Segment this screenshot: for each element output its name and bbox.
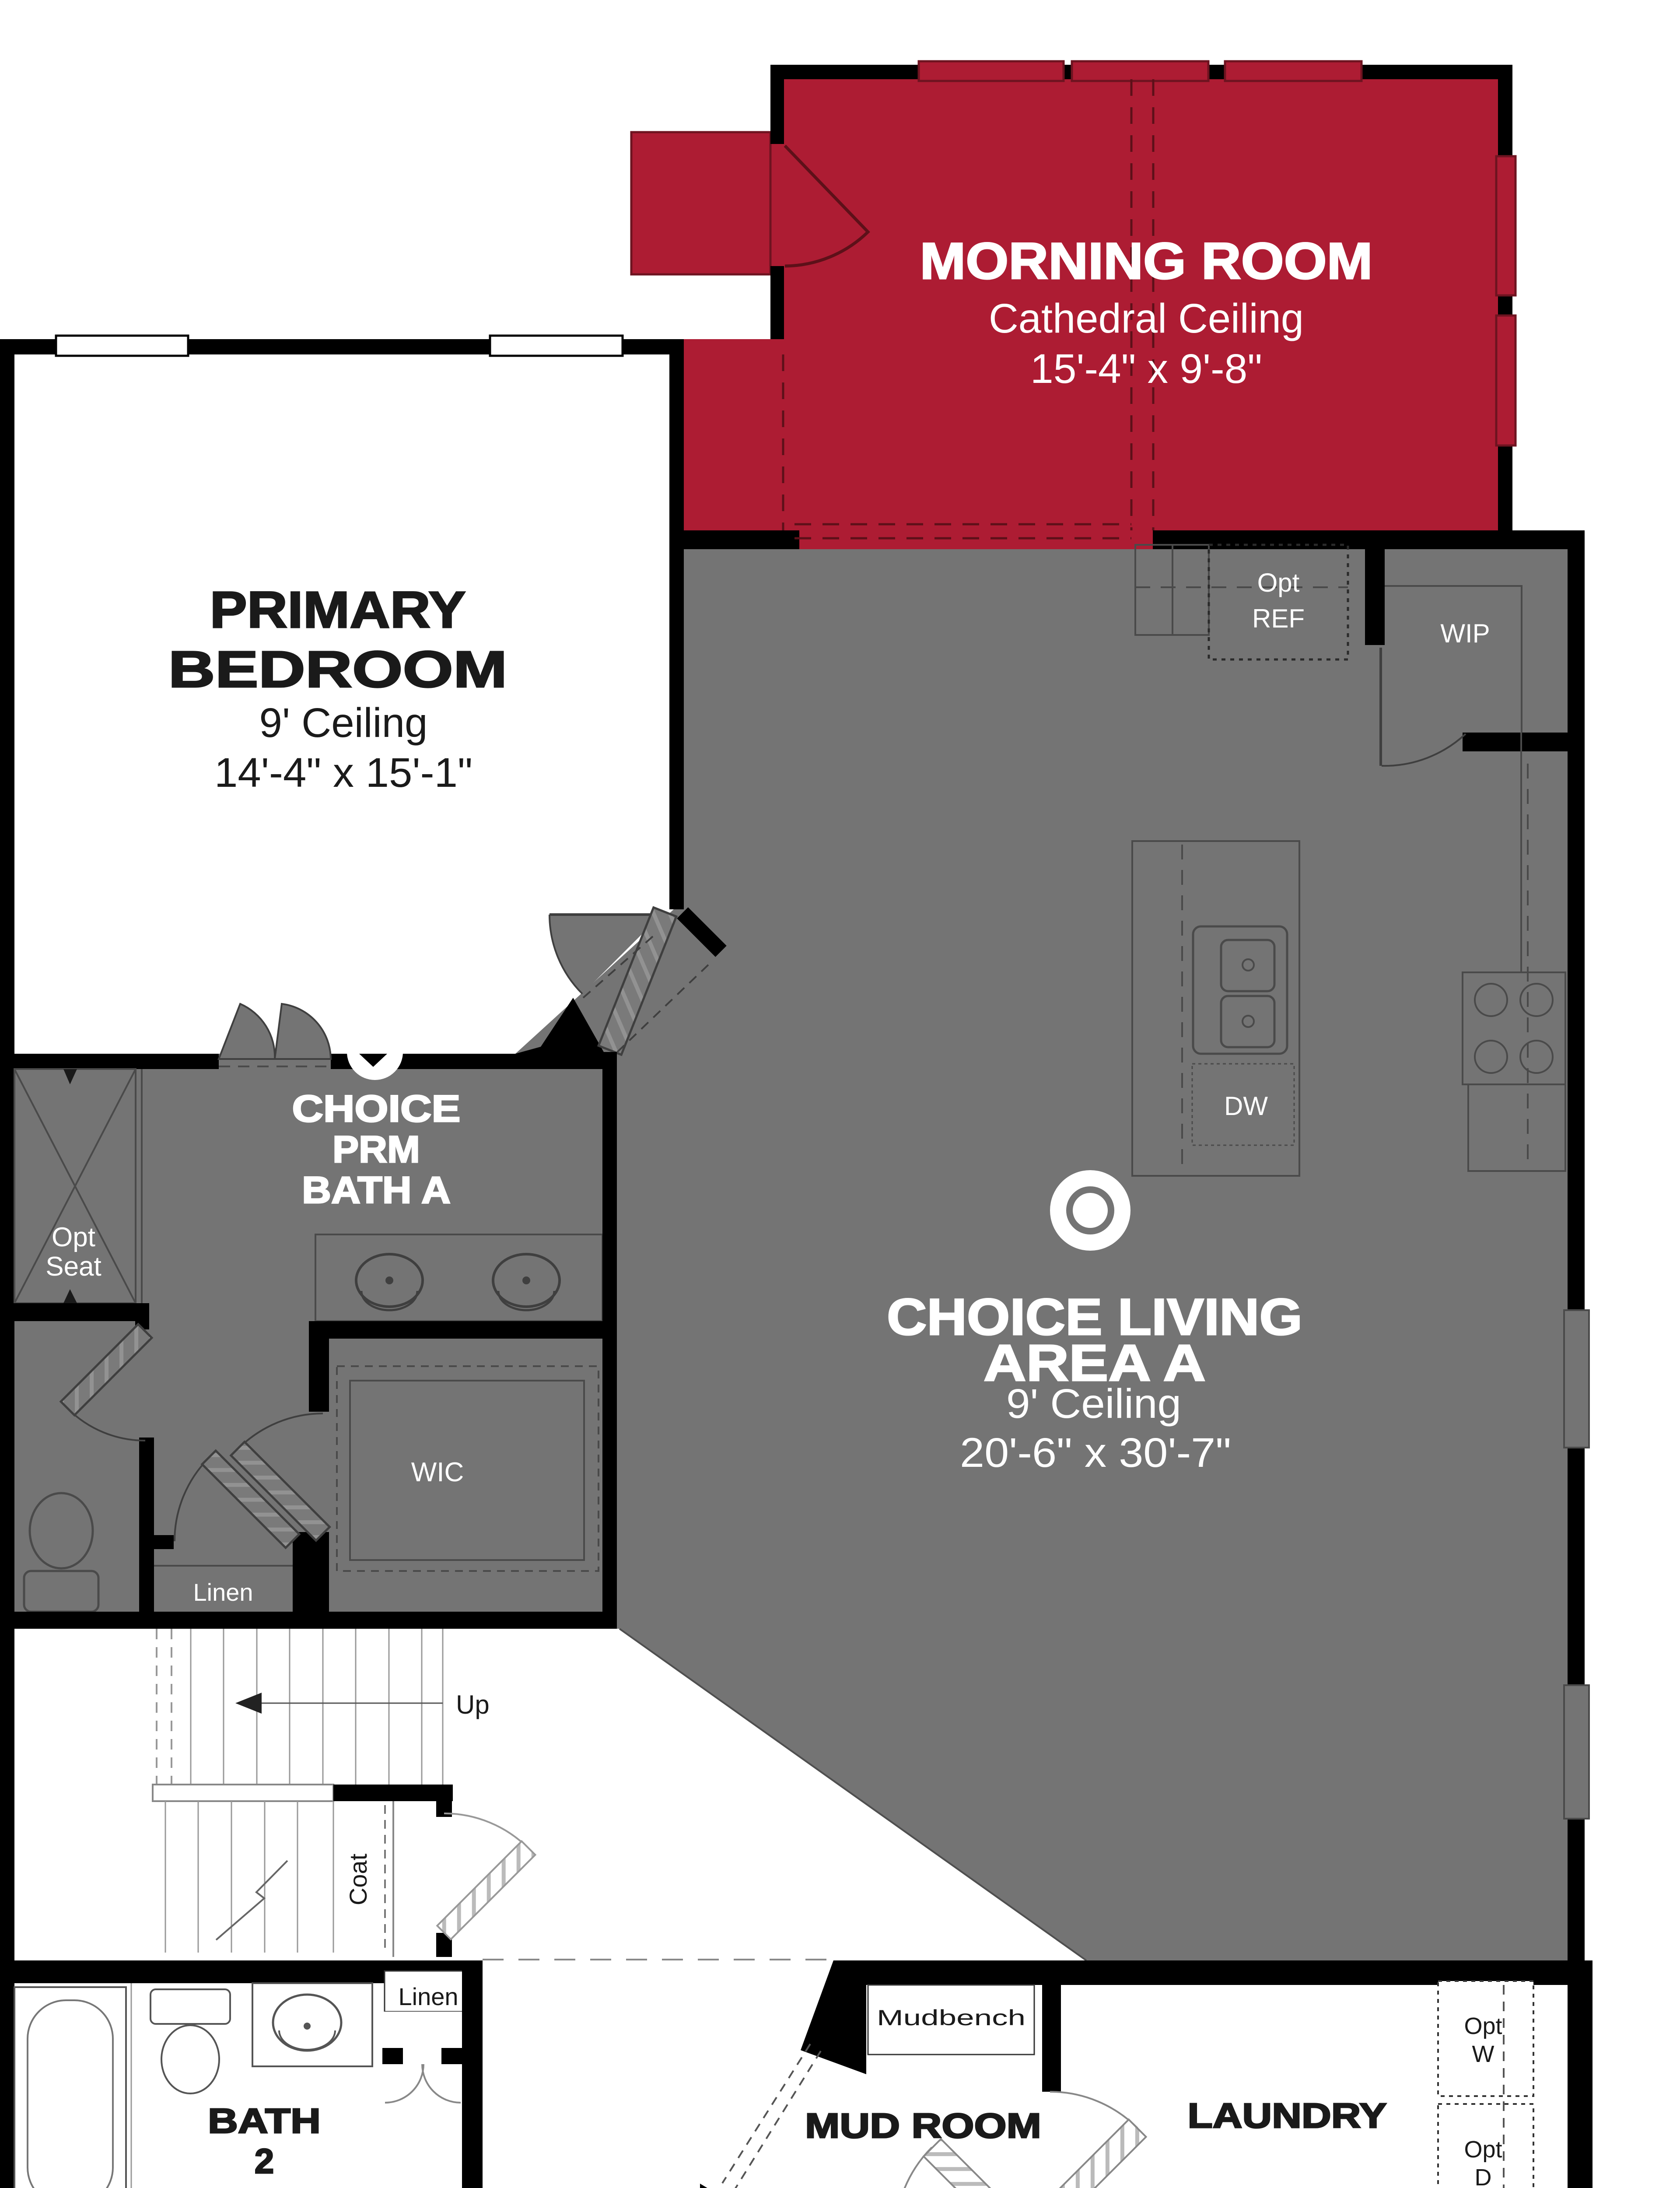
- svg-text:WIP: WIP: [1440, 619, 1490, 648]
- svg-text:PRIMARY: PRIMARY: [210, 581, 466, 639]
- svg-text:BATH: BATH: [208, 2101, 321, 2140]
- svg-text:9' Ceiling: 9' Ceiling: [259, 700, 428, 746]
- svg-text:BATH A: BATH A: [302, 1169, 451, 1211]
- svg-text:Linen: Linen: [398, 1983, 458, 2010]
- svg-text:20'-6" x 30'-7": 20'-6" x 30'-7": [960, 1430, 1231, 1476]
- svg-text:WIC: WIC: [411, 1457, 464, 1487]
- svg-text:MORNING ROOM: MORNING ROOM: [920, 232, 1373, 290]
- svg-text:Linen: Linen: [193, 1578, 253, 1606]
- svg-text:Seat: Seat: [45, 1252, 101, 1282]
- svg-text:CHOICE: CHOICE: [292, 1088, 461, 1130]
- svg-text:REF: REF: [1252, 604, 1305, 633]
- svg-text:2: 2: [255, 2142, 274, 2181]
- svg-text:Mudbench: Mudbench: [877, 2006, 1025, 2030]
- svg-text:Up: Up: [456, 1690, 490, 1719]
- svg-text:15'-4" x 9'-8": 15'-4" x 9'-8": [1030, 346, 1262, 392]
- svg-text:BEDROOM: BEDROOM: [168, 641, 507, 698]
- svg-text:14'-4" x 15'-1": 14'-4" x 15'-1": [214, 750, 472, 796]
- svg-text:Opt: Opt: [1257, 568, 1300, 597]
- svg-text:PRM: PRM: [332, 1129, 420, 1171]
- svg-text:DW: DW: [1224, 1091, 1268, 1121]
- svg-text:W: W: [1472, 2041, 1494, 2067]
- svg-text:Opt: Opt: [1464, 2013, 1502, 2039]
- svg-text:Coat: Coat: [344, 1853, 372, 1905]
- svg-text:9' Ceiling: 9' Ceiling: [1006, 1381, 1181, 1427]
- svg-text:Opt: Opt: [1464, 2136, 1502, 2163]
- svg-text:D: D: [1475, 2164, 1492, 2188]
- svg-text:LAUNDRY: LAUNDRY: [1188, 2096, 1387, 2135]
- svg-text:Cathedral Ceiling: Cathedral Ceiling: [989, 295, 1304, 342]
- svg-text:MUD ROOM: MUD ROOM: [805, 2106, 1041, 2145]
- svg-text:Opt: Opt: [52, 1222, 95, 1252]
